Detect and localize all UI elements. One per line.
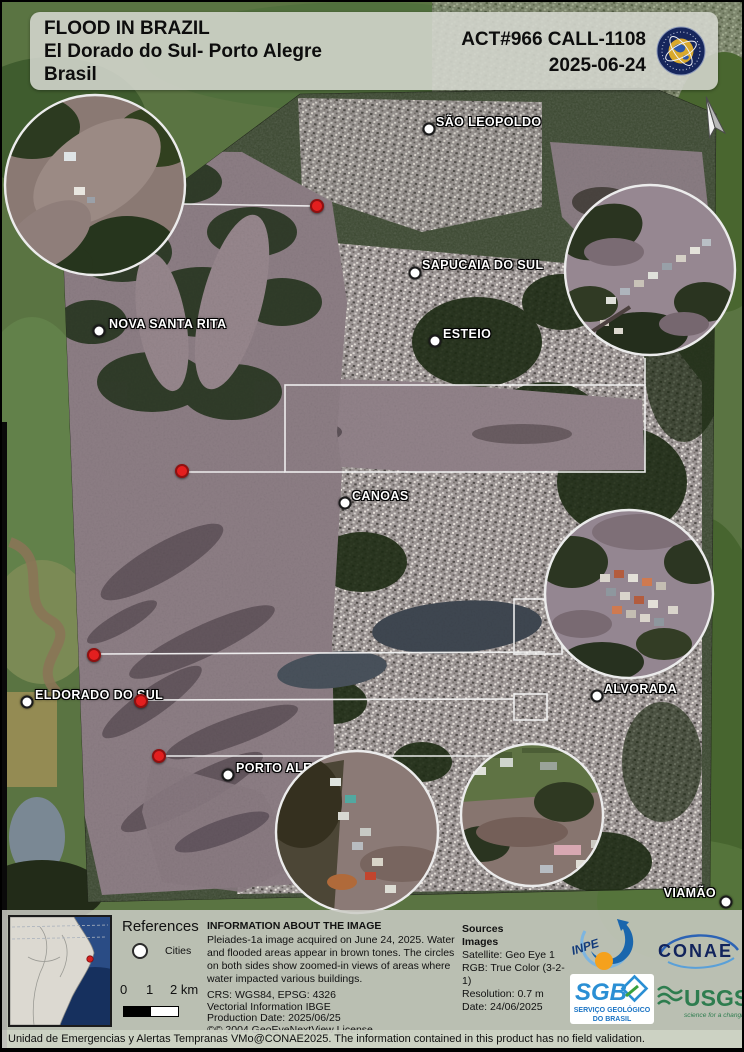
sources-subheading: Images [462,936,572,949]
sgb-sub-line-1: SERVIÇO GEOLÓGICO [574,1005,651,1014]
scale-tick-0: 0 [120,982,127,997]
city-label-sapucaia-do-sul: SAPUCAIA DO SUL [422,258,544,272]
conae-logo: CONAE [654,924,742,970]
source-satellite: Satellite: Geo Eye 1 [462,949,572,962]
map-title: FLOOD IN BRAZIL El Dorado do Sul- Porto … [44,17,322,86]
sgb-logo-text: SGB [575,979,627,1006]
activation-date: 2025-06-24 [461,53,646,79]
impact-marker-3 [87,648,101,662]
references-title: References [122,918,199,935]
image-info-body: Pleiades-1a image acquired on June 24, 2… [207,934,459,986]
city-marker-viamao [720,896,733,909]
city-label-canoas: CANOAS [352,489,409,503]
aoi-rectangle-large [285,385,645,472]
city-marker-alvorada [591,690,604,703]
zoom-inset-1 [2,92,199,289]
info-panel: References Cities 0 1 2 km INFORMATION A… [2,910,744,1030]
sources-heading: Sources [462,923,572,936]
flood-map-product: SÃO LEOPOLDO SAPUCAIA DO SUL NOVA SANTA … [0,0,744,1052]
city-label-nova-santa-rita: NOVA SANTA RITA [109,317,227,331]
zoom-insets [2,2,744,1052]
usgs-logo-text: USGS [684,985,742,1011]
scale-tick-2: 2 km [170,982,198,997]
production-date-line: Production Date: 2025/06/25 [207,1013,459,1025]
usgs-tagline: science for a changing world [684,1012,742,1019]
scale-bar [123,1006,179,1017]
source-rgb: RGB: True Color (3-2-1) [462,962,572,988]
satellite-basemap [2,2,744,1052]
impact-marker-2 [175,464,189,478]
conae-logo-text: CONAE [658,941,733,961]
impact-marker-4 [134,694,148,708]
scale-tick-1: 1 [146,982,153,997]
inpe-logo: INPE [567,915,645,975]
sgb-sub-line-2: DO BRASIL [593,1016,632,1023]
title-card: FLOOD IN BRAZIL El Dorado do Sul- Porto … [30,12,718,90]
city-marker-porto-alegre [222,769,235,782]
city-marker-eldorado-do-sul [21,696,34,709]
activation-call-number: ACT#966 CALL-1108 [461,27,646,53]
impact-marker-5 [152,749,166,763]
city-marker-sao-leopoldo [423,123,436,136]
title-line-1: FLOOD IN BRAZIL [44,17,322,40]
zoom-inset-2 [554,182,742,362]
aoi-rectangle-small-1 [514,599,562,654]
sources-block: Sources Images Satellite: Geo Eye 1 RGB:… [462,923,572,1014]
sgb-logo: SGB SERVIÇO GEOLÓGICO DO BRASIL [570,974,654,1024]
source-date: Date: 24/06/2025 [462,1001,572,1014]
title-line-3: Brasil [44,63,322,86]
image-info-heading: INFORMATION ABOUT THE IMAGE [207,920,462,932]
cities-legend-label: Cities [165,945,191,957]
city-label-porto-alegre: PORTO ALEGRE [236,761,340,775]
city-label-esteio: ESTEIO [443,327,491,341]
city-marker-sapucaia-do-sul [409,267,422,280]
zoom-inset-4 [262,751,444,913]
bottom-border [2,1048,744,1052]
crs-line: CRS: WGS84, EPSG: 4326 [207,990,459,1002]
zoom-inset-5 [454,744,603,886]
city-marker-nova-santa-rita [93,325,106,338]
forest-patches [192,274,724,892]
north-arrow-icon [692,90,732,144]
status-bar: Unidad de Emergencias y Alertas Temprana… [2,1030,744,1048]
city-marker-canoas [339,497,352,510]
city-marker-esteio [429,335,442,348]
flood-water-areas [57,142,714,895]
disasters-charter-logo-icon [656,26,706,76]
locator-aoi-marker [87,956,93,962]
city-label-viamao: VIAMÃO [664,886,716,900]
city-label-sao-leopoldo: SÃO LEOPOLDO [436,115,542,129]
activation-info: ACT#966 CALL-1108 2025-06-24 [461,27,646,79]
title-line-2: El Dorado do Sul- Porto Alegre [44,40,322,63]
usgs-logo: USGS science for a changing world [656,980,742,1022]
cities-marker-icon [132,943,148,959]
city-label-alvorada: ALVORADA [604,682,677,696]
inset-connectors [99,204,645,756]
zoom-inset-3 [536,507,724,687]
locator-map [8,915,112,1027]
aoi-rectangle-small-2 [514,694,547,720]
source-resolution: Resolution: 0.7 m [462,988,572,1001]
impact-marker-1 [310,199,324,213]
